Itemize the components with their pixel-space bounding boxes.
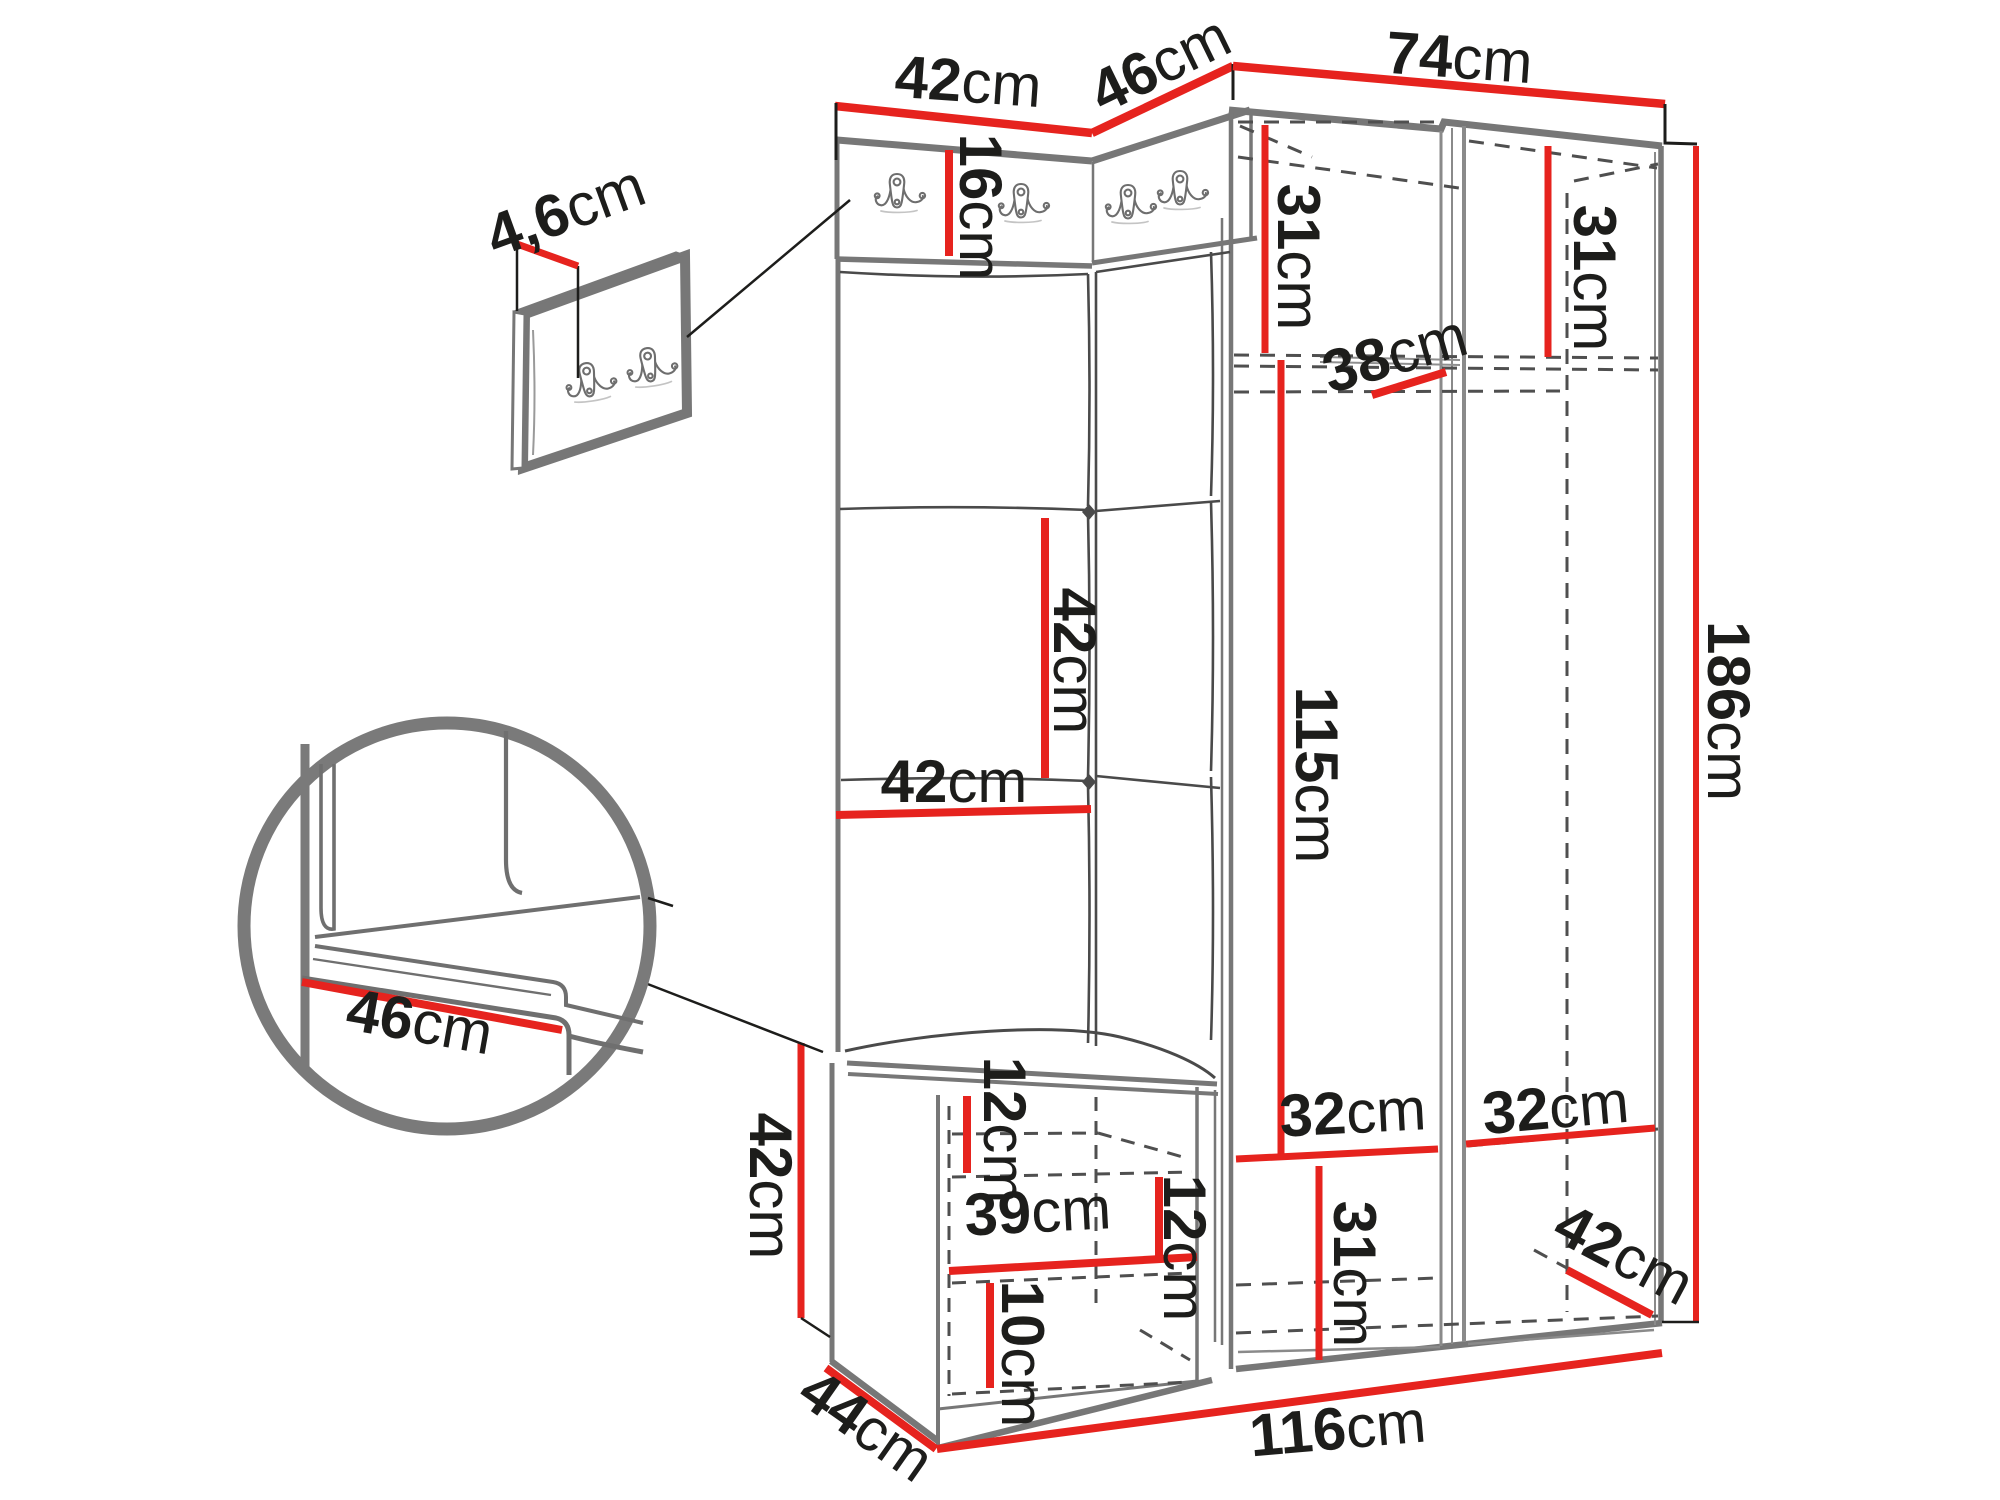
svg-text:32cm: 32cm bbox=[1480, 1068, 1632, 1148]
svg-text:10cm: 10cm bbox=[989, 1281, 1056, 1428]
svg-text:115cm: 115cm bbox=[1283, 687, 1350, 864]
svg-text:74cm: 74cm bbox=[1384, 19, 1535, 96]
svg-text:31cm: 31cm bbox=[1265, 184, 1332, 331]
svg-text:42cm: 42cm bbox=[893, 43, 1044, 120]
svg-text:16cm: 16cm bbox=[947, 134, 1014, 281]
svg-text:31cm: 31cm bbox=[1561, 205, 1628, 352]
svg-text:42cm: 42cm bbox=[737, 1113, 804, 1260]
svg-text:39cm: 39cm bbox=[963, 1174, 1113, 1249]
svg-text:42cm: 42cm bbox=[881, 748, 1028, 815]
svg-text:32cm: 32cm bbox=[1278, 1075, 1428, 1150]
svg-text:42cm: 42cm bbox=[1041, 588, 1108, 735]
svg-text:12cm: 12cm bbox=[1151, 1175, 1218, 1322]
svg-text:31cm: 31cm bbox=[1321, 1201, 1388, 1348]
svg-text:186cm: 186cm bbox=[1695, 621, 1762, 801]
